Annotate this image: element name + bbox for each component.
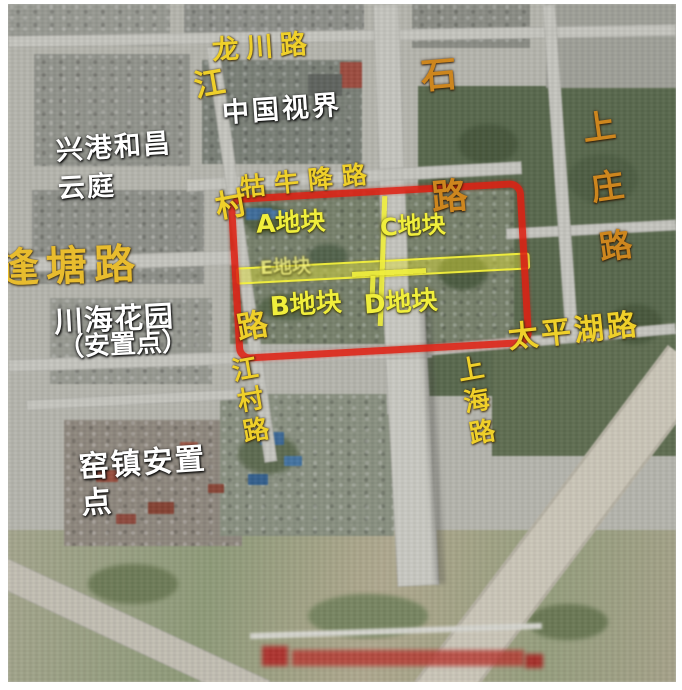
label-yaozhen-resettlement: 窑镇安置 点 [78, 442, 211, 523]
bottom-red-structure [292, 650, 524, 666]
building-roof-blue [284, 456, 302, 466]
label-plot-d: D地块 [363, 285, 439, 321]
road-segment [26, 388, 248, 411]
bottom-red-structure [525, 654, 543, 668]
building-roof-blue [248, 474, 268, 485]
city-block [412, 4, 530, 48]
label-plot-c: C地块 [379, 210, 446, 242]
label-plot-b: B地块 [269, 288, 343, 324]
label-plot-e: E地块 [259, 255, 311, 280]
satellite-map: 龙川路 江村路 石路 中国视界 兴港和昌 云庭 上庄路 牯牛降路 逢塘路 川海花… [8, 4, 676, 682]
photo-frame: 龙川路 江村路 石路 中国视界 兴港和昌 云庭 上庄路 牯牛降路 逢塘路 川海花… [0, 0, 682, 690]
region-topright-blocks [546, 4, 676, 88]
label-yunting: 云庭 [57, 171, 117, 206]
building-roof-red [340, 62, 362, 88]
label-plot-a: A地块 [255, 206, 326, 240]
label-fengtang-road: 逢塘路 [8, 240, 143, 294]
tree-patch [458, 124, 518, 164]
bottom-red-structure [262, 646, 288, 666]
tree-patch [88, 564, 178, 604]
building-roof-red [208, 484, 224, 493]
